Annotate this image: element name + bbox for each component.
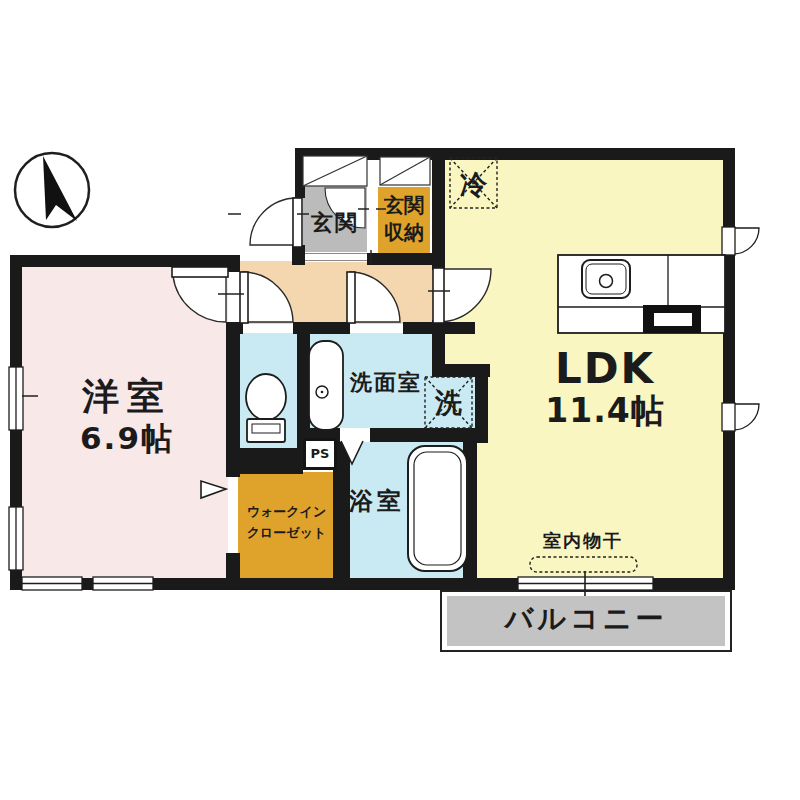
balcony-label: バルコニー xyxy=(440,601,732,637)
wall-left-b xyxy=(10,430,22,507)
wall-entry-corner xyxy=(292,245,305,265)
wall-right xyxy=(723,148,735,590)
wall-left-a xyxy=(10,255,22,367)
bathroom-label: 浴室 xyxy=(341,486,413,517)
ldk-name: LDK xyxy=(495,342,715,397)
genkan-label: 玄関 xyxy=(302,209,368,238)
north-arrow-icon xyxy=(15,153,89,227)
wall-left-c xyxy=(10,570,22,590)
wic-label: ウォークイン クローゼット xyxy=(238,502,335,544)
floor-toilet xyxy=(238,333,299,450)
pipe-space-box: PS xyxy=(303,438,337,470)
wall-bathroom-right xyxy=(463,443,477,590)
wall-toilet-washroom xyxy=(297,333,310,448)
western-room-size: 6.9帖 xyxy=(27,418,227,458)
wall-hall-bottom-c xyxy=(403,322,475,334)
entry-door-leaf xyxy=(293,198,302,247)
refrigerator-label: 冷 xyxy=(450,167,497,202)
indoor-drying-label: 室内物干 xyxy=(528,529,638,552)
wall-entry-left-upper xyxy=(295,148,305,198)
wall-ldk-left-upper xyxy=(432,160,445,270)
east-window-lower-swing xyxy=(733,404,759,430)
west-window-upper xyxy=(9,367,23,430)
pipe-space-label: PS xyxy=(311,446,330,461)
east-window-upper-swing xyxy=(733,228,759,254)
western-room-name: 洋室 xyxy=(27,373,227,421)
ldk-size: 11.4帖 xyxy=(495,390,715,433)
genkan-upper-cabinet xyxy=(303,156,430,186)
washer-label: 洗 xyxy=(425,385,472,420)
floor-hallway xyxy=(240,261,445,324)
wall-step-h xyxy=(432,364,490,377)
wall-bottom-mullion xyxy=(82,578,93,590)
wall-hall-bottom-b xyxy=(293,322,350,334)
west-window-lower xyxy=(9,507,23,570)
wall-western-top xyxy=(10,255,240,267)
genkan-storage-label: 玄関 収納 xyxy=(378,192,430,246)
wall-hall-left-upper xyxy=(226,255,240,272)
floor-plan: PS 洋室 6.9帖 LDK 11.4帖 玄関 玄関 収納 冷 洗面室 洗 浴室… xyxy=(0,0,800,800)
wall-washroom-bottom-b xyxy=(370,428,477,442)
wall-hall-bottom-a xyxy=(226,322,243,334)
wall-bottom-b xyxy=(653,578,735,590)
wall-top xyxy=(295,148,735,160)
entry-door-swing xyxy=(250,198,297,245)
wall-western-right-b xyxy=(226,553,240,590)
wall-toilet-bottom xyxy=(226,448,303,474)
washroom-label: 洗面室 xyxy=(340,369,432,398)
